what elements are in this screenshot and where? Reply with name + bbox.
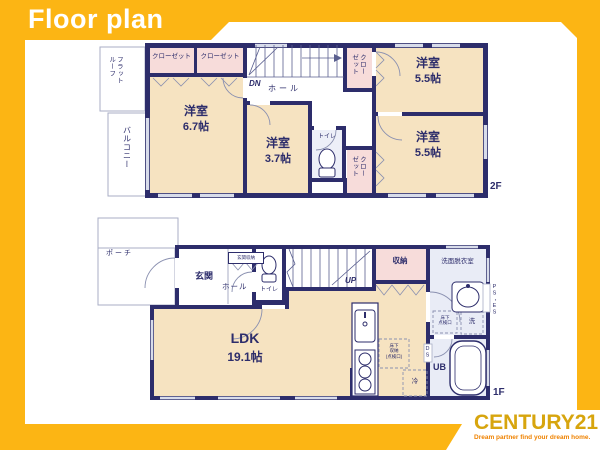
toilet1-label: トイレ <box>254 287 284 294</box>
room3-label: 洋室 <box>395 56 461 70</box>
entrance-label: 玄関 <box>186 271 222 282</box>
room1-size: 6.7帖 <box>163 121 229 134</box>
floor-hatch-label: 床下 点検口 <box>432 315 458 326</box>
closet4-label: クローゼット <box>350 156 365 182</box>
porch-label: ポーチ <box>106 250 133 258</box>
balcony-label: バルコニー <box>122 126 131 184</box>
floor1-label: 1F <box>493 387 505 399</box>
room3-size: 5.5帖 <box>395 73 461 86</box>
room1-label: 洋室 <box>163 104 229 118</box>
brand-ribbon: CENTURY21 Dream partner find your dream … <box>446 410 600 450</box>
bathtub-icon <box>450 341 486 395</box>
washer-label: 洗 <box>461 318 483 326</box>
hall1-label: ホール <box>222 283 248 292</box>
washroom-label: 洗面脱衣室 <box>429 258 486 266</box>
floor-plan-drawing <box>0 0 600 450</box>
unit-bath-label: UB <box>433 362 446 373</box>
room2-size: 3.7帖 <box>246 153 310 166</box>
brand-tagline: Dream partner find your dream home. <box>474 434 590 441</box>
room4-size: 5.5帖 <box>395 147 461 160</box>
hall2-label: ホール <box>268 84 301 93</box>
room4-label: 洋室 <box>395 130 461 144</box>
stairs-arrow <box>334 54 342 62</box>
porch-outline <box>98 218 178 305</box>
fridge-label: 冷 <box>403 378 427 386</box>
washbasin-icon <box>452 282 484 312</box>
toilet2-label: トイレ <box>311 134 343 141</box>
ps-notch <box>483 284 490 312</box>
page-title: Floor plan <box>28 4 164 35</box>
brand-logo: CENTURY21 <box>474 411 598 435</box>
floor-storage-label: 床下 収納 (点検口) <box>379 343 409 359</box>
up-label: UP <box>345 276 356 285</box>
dn-label: DN <box>249 79 261 88</box>
ps-es-label: PS・ES <box>491 284 497 324</box>
floor2-label: 2F <box>490 181 502 193</box>
closet1-label: クローゼット <box>149 53 194 61</box>
ldk-label: LDK <box>200 330 290 347</box>
toilet-icon-1f <box>262 256 276 282</box>
ds-label: DS <box>424 346 430 362</box>
toilet-icon-2f <box>319 149 335 177</box>
flat-roof-label: フラットルーフ <box>107 56 122 89</box>
stairs-up <box>287 249 370 287</box>
stairs-down <box>247 45 344 77</box>
floor1-plan <box>98 218 490 400</box>
closet3-label: クローゼット <box>350 54 365 80</box>
ldk-size: 19.1帖 <box>200 350 290 364</box>
entrance-storage-label: 玄関収納 <box>228 252 264 264</box>
storage-label: 収納 <box>374 257 426 266</box>
floor-plan-page: クローゼット クローゼット フラットルーフ バルコニー 洋室 6.7帖 洋室 3… <box>0 0 600 450</box>
room2-label: 洋室 <box>246 136 310 150</box>
closet2-label: クローゼット <box>197 53 243 61</box>
